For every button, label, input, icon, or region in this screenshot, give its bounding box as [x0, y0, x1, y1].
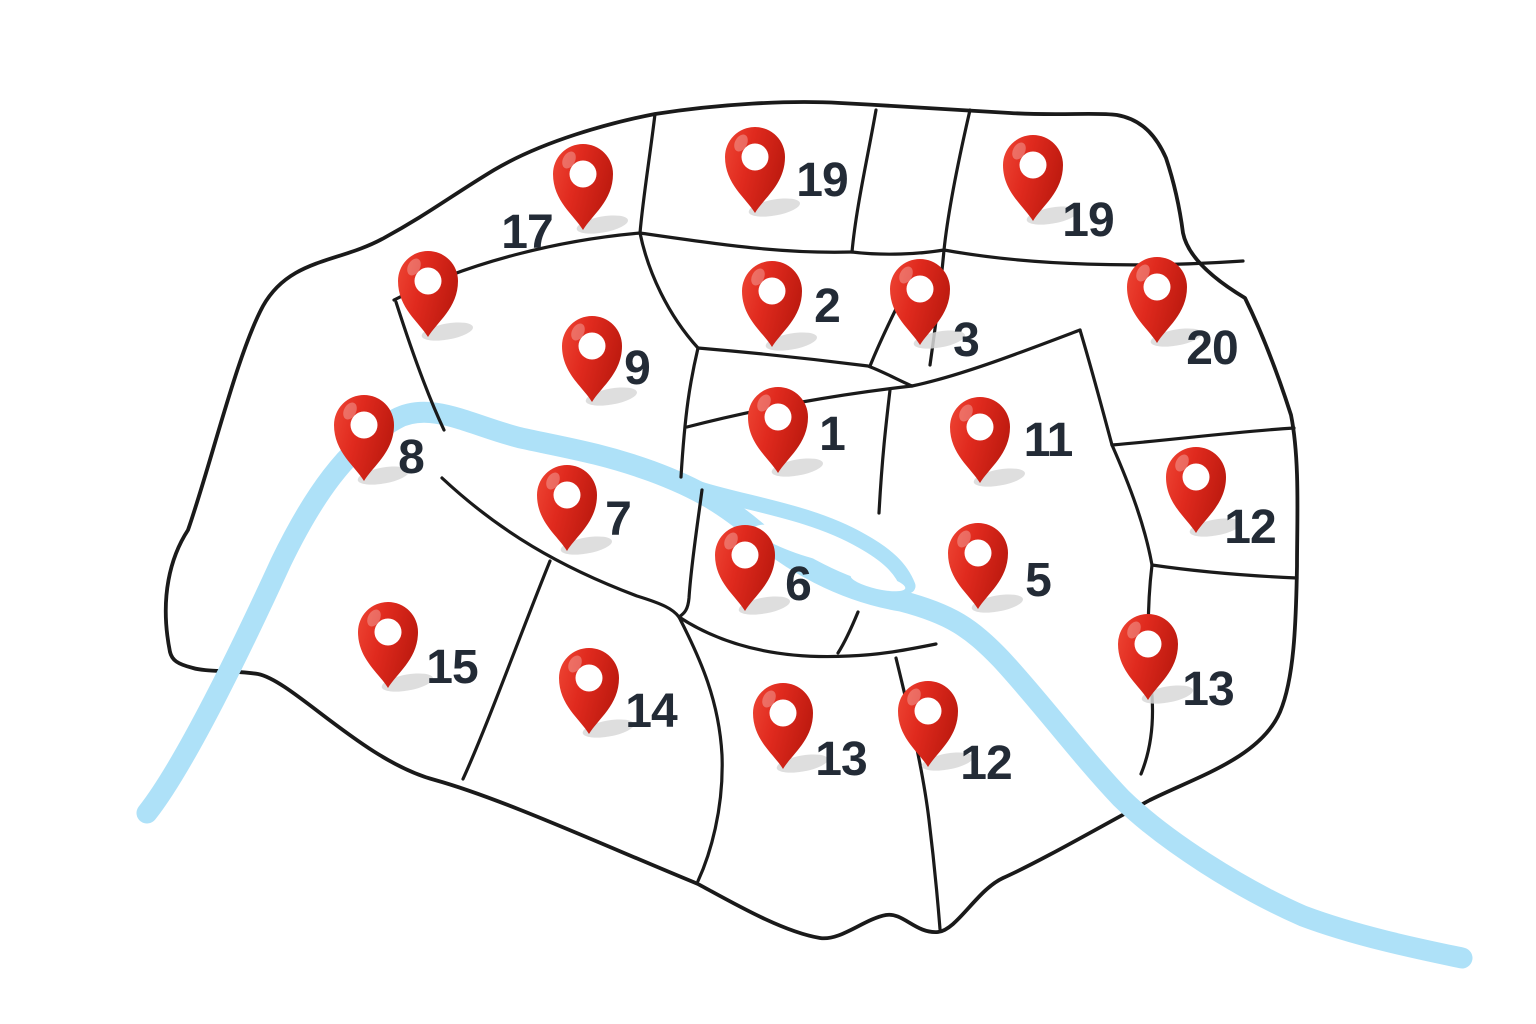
pin-hole — [579, 333, 606, 360]
pin-label: 19 — [796, 154, 847, 207]
pin-label: 13 — [1182, 663, 1233, 716]
pin-hole — [576, 665, 603, 692]
pin-label: 7 — [605, 493, 631, 546]
pin-label: 5 — [1025, 554, 1051, 607]
pin-hole — [965, 540, 992, 567]
pin-hole — [375, 619, 402, 646]
pin-label: 3 — [953, 314, 979, 367]
pin-label: 2 — [814, 280, 840, 333]
pin-label: 12 — [960, 737, 1011, 790]
pin-hole — [907, 276, 934, 303]
pin-hole — [415, 268, 442, 295]
pin-label: 1 — [819, 408, 845, 461]
pin-label: 19 — [1062, 194, 1113, 247]
paris-arrondissements-map: 171919232098111127651513141312 — [0, 0, 1536, 1024]
pin-label: 13 — [815, 733, 866, 786]
pin-hole — [351, 412, 378, 439]
pin-label: 14 — [625, 685, 678, 738]
pin-hole — [742, 144, 769, 171]
pin-label: 9 — [624, 342, 650, 395]
pin-hole — [915, 698, 942, 725]
pin-label: 8 — [398, 431, 424, 484]
pin-hole — [1144, 274, 1171, 301]
pin-hole — [1020, 152, 1047, 179]
pin-hole — [554, 482, 581, 509]
pin-hole — [765, 404, 792, 431]
pin-hole — [732, 542, 759, 569]
pin-label: 11 — [1024, 414, 1073, 467]
pin-hole — [770, 700, 797, 727]
pin-hole — [759, 278, 786, 305]
pin-label: 12 — [1224, 501, 1275, 554]
pin-hole — [967, 414, 994, 441]
pin-label: 20 — [1186, 322, 1237, 375]
pin-label: 6 — [785, 558, 811, 611]
pin-hole — [1183, 464, 1210, 491]
pin-label: 15 — [426, 641, 478, 694]
pin-label: 17 — [501, 206, 552, 259]
pin-hole — [1135, 631, 1162, 658]
pin-hole — [570, 161, 597, 188]
